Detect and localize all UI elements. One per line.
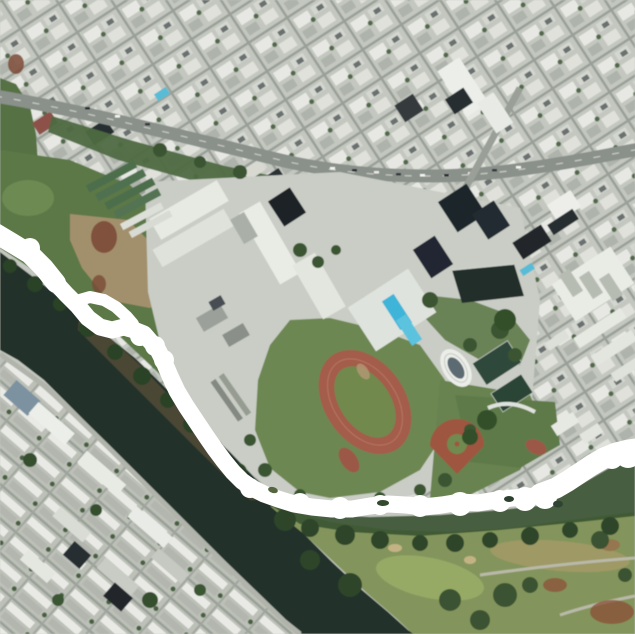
satellite-canvas <box>0 0 635 634</box>
map-viewport[interactable] <box>0 0 635 634</box>
auditorium-dark-roof <box>452 264 524 303</box>
